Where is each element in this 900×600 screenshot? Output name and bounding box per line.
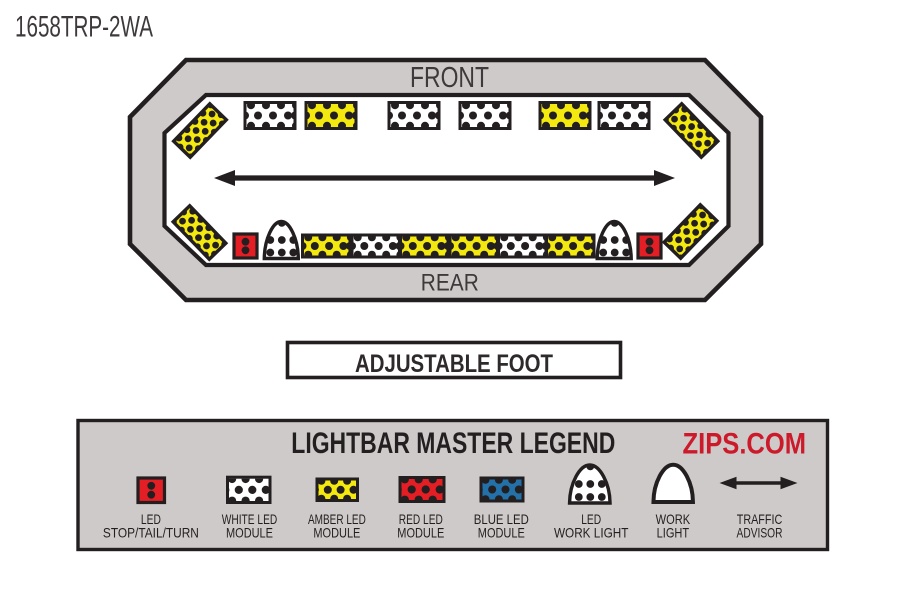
svg-text:MODULE: MODULE: [478, 525, 525, 541]
svg-text:MODULE: MODULE: [397, 525, 444, 541]
svg-text:ADJUSTABLE FOOT: ADJUSTABLE FOOT: [355, 351, 553, 378]
svg-text:MODULE: MODULE: [226, 525, 273, 541]
svg-text:LIGHT: LIGHT: [657, 525, 690, 541]
svg-text:ADVISOR: ADVISOR: [737, 525, 783, 541]
svg-text:REAR: REAR: [421, 269, 479, 296]
svg-text:MODULE: MODULE: [313, 525, 360, 541]
svg-text:LIGHTBAR MASTER LEGEND: LIGHTBAR MASTER LEGEND: [291, 428, 615, 460]
svg-text:STOP/TAIL/TURN: STOP/TAIL/TURN: [103, 525, 199, 541]
svg-text:WORK LIGHT: WORK LIGHT: [554, 525, 629, 541]
svg-text:ZIPS.COM: ZIPS.COM: [683, 428, 807, 461]
svg-text:1658TRP-2WA: 1658TRP-2WA: [15, 11, 153, 44]
svg-text:FRONT: FRONT: [410, 62, 489, 94]
